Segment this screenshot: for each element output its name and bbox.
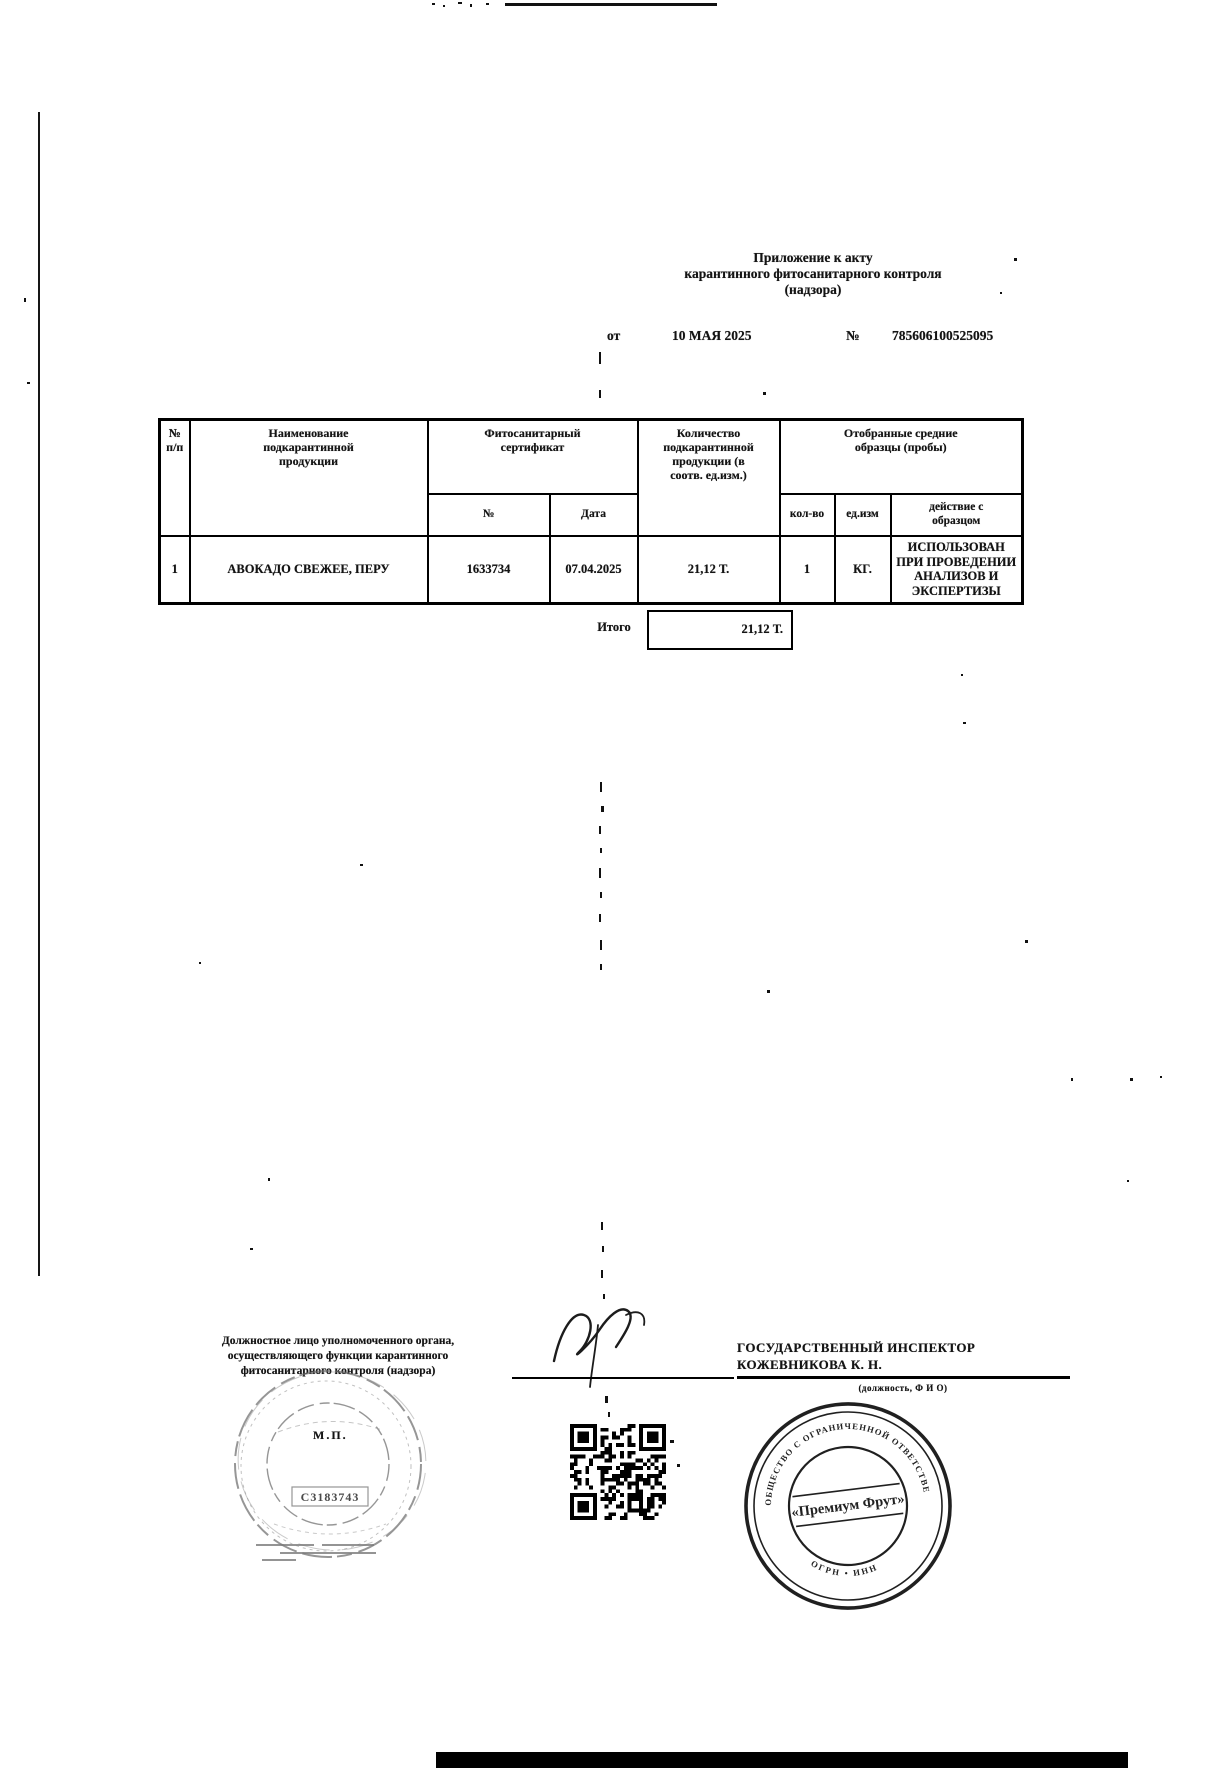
fold-mark	[599, 352, 601, 364]
fold-mark	[599, 914, 601, 922]
col-header-count: кол-во	[780, 494, 835, 536]
inspector-name: КОЖЕВНИКОВА К. Н.	[737, 1357, 1077, 1374]
fold-mark	[599, 826, 601, 834]
inspector-signature-line	[737, 1376, 1070, 1379]
scan-noise	[250, 1248, 253, 1250]
cell-cert-no: 1633734	[428, 536, 550, 604]
scan-noise	[767, 990, 770, 993]
inspector-block: ГОСУДАРСТВЕННЫЙ ИНСПЕКТОР КОЖЕВНИКОВА К.…	[737, 1340, 1077, 1373]
ref-from-label: от	[607, 328, 620, 346]
scan-noise	[360, 864, 363, 866]
scan-edge-line	[38, 112, 40, 1276]
col-header-action: действие с образцом	[891, 494, 1023, 536]
scan-noise	[470, 4, 472, 7]
col-header-unit: ед.изм	[835, 494, 891, 536]
scan-noise	[443, 5, 445, 7]
cell-count: 1	[780, 536, 835, 604]
scan-noise	[1014, 258, 1017, 261]
ref-date: 10 МАЯ 2025	[672, 328, 752, 346]
col-header-cert-no: №	[428, 494, 550, 536]
cell-num: 1	[160, 536, 190, 604]
ref-number: 785606100525095	[892, 328, 993, 346]
scan-noise	[268, 1178, 270, 1181]
col-header-quantity: Количество подкарантинной продукции (в с…	[638, 420, 780, 536]
scan-noise	[963, 722, 966, 724]
fold-mark	[600, 964, 602, 970]
scan-noise	[1000, 292, 1002, 294]
scan-noise	[458, 2, 462, 4]
total-value: 21,12 Т.	[649, 612, 791, 646]
scan-noise	[1127, 1180, 1129, 1182]
scan-noise	[1130, 1078, 1133, 1081]
fold-mark	[599, 868, 601, 878]
scan-noise	[670, 1440, 674, 1443]
scan-noise	[199, 962, 201, 964]
signature-stroke	[540, 1295, 680, 1415]
fold-mark	[600, 848, 602, 853]
fold-mark	[601, 1270, 603, 1278]
products-table: № п/п Наименование подкарантинной продук…	[158, 418, 1024, 605]
qr-code	[570, 1424, 666, 1520]
fold-mark	[601, 1222, 603, 1230]
scan-noise	[1071, 1078, 1073, 1081]
stamp-ring-bottom-text: ОГРН • ИНН	[808, 1550, 880, 1583]
scan-noise	[677, 1464, 680, 1467]
inspector-title: ГОСУДАРСТВЕННЫЙ ИНСПЕКТОР	[737, 1340, 1077, 1357]
col-header-num: № п/п	[160, 420, 190, 536]
fold-mark	[602, 1246, 604, 1252]
scanned-document-page: Приложение к акту карантинного фитосанит…	[0, 0, 1222, 1768]
company-stamp: ОБЩЕСТВО С ОГРАНИЧЕННОЙ ОТВЕТСТВЕННОСТЬЮ…	[740, 1398, 956, 1614]
cell-quantity: 21,12 Т.	[638, 536, 780, 604]
scan-noise	[1025, 940, 1028, 943]
total-value-box: 21,12 Т.	[647, 610, 793, 650]
fold-mark	[600, 782, 602, 792]
svg-text:ОГРН • ИНН: ОГРН • ИНН	[808, 1550, 880, 1583]
scan-noise	[505, 3, 717, 6]
fold-mark	[600, 940, 602, 950]
cell-unit: КГ.	[835, 536, 891, 604]
cell-product: АВОКАДО СВЕЖЕЕ, ПЕРУ	[190, 536, 428, 604]
fold-mark	[601, 806, 604, 812]
col-header-product: Наименование подкарантинной продукции	[190, 420, 428, 536]
ref-number-label: №	[846, 328, 860, 346]
scan-noise	[24, 298, 26, 302]
signature-caption: (должность, Ф И О)	[737, 1383, 1069, 1393]
col-header-certificate: Фитосанитарный сертификат	[428, 420, 638, 494]
document-title: Приложение к акту карантинного фитосанит…	[598, 250, 1028, 298]
scan-noise	[486, 3, 489, 5]
scan-noise	[763, 392, 766, 395]
scan-noise	[27, 382, 30, 384]
total-label: Итого	[583, 620, 645, 635]
col-header-cert-date: Дата	[550, 494, 638, 536]
col-header-samples: Отобранные средние образцы (пробы)	[780, 420, 1023, 494]
cell-cert-date: 07.04.2025	[550, 536, 638, 604]
signature-line	[512, 1377, 734, 1379]
cell-action: ИСПОЛЬЗОВАН ПРИ ПРОВЕДЕНИИ АНАЛИЗОВ И ЭК…	[891, 536, 1023, 604]
table-row: 1 АВОКАДО СВЕЖЕЕ, ПЕРУ 1633734 07.04.202…	[160, 536, 1023, 604]
stamp-mark-mp: М.П.	[313, 1428, 348, 1443]
stamp-number: С3183743	[301, 1490, 360, 1504]
bottom-scan-bar	[436, 1752, 1128, 1768]
fold-mark	[600, 892, 602, 898]
scan-noise	[432, 3, 435, 5]
official-round-stamp: С3183743	[222, 1366, 440, 1576]
scan-noise	[961, 674, 963, 676]
scan-noise	[1160, 1076, 1162, 1078]
fold-mark	[599, 390, 601, 398]
